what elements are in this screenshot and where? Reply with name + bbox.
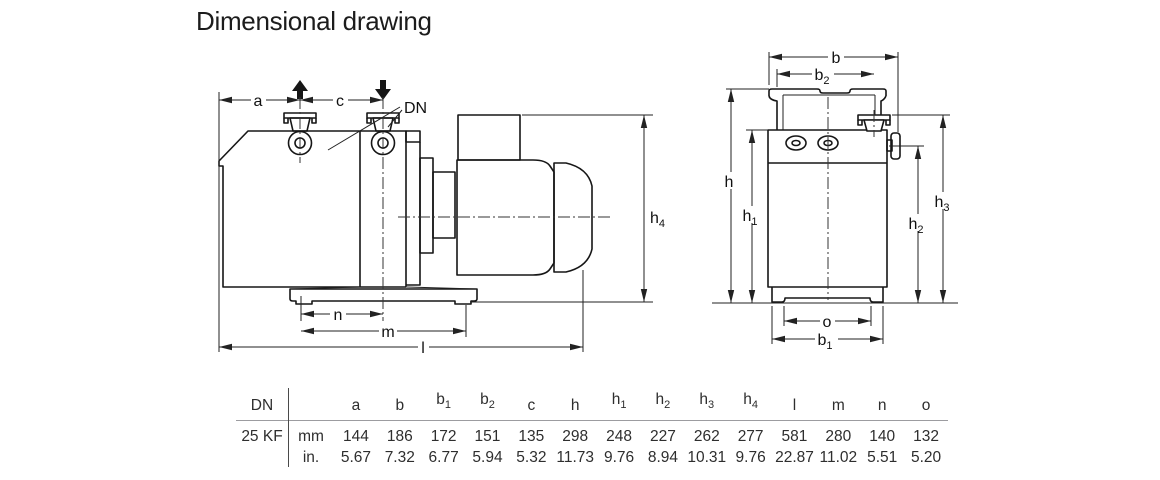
col-header-dn: DN [236, 395, 288, 416]
value-mm-b1: 172 [422, 426, 466, 447]
value-mm-h2: 227 [641, 426, 685, 447]
col-header-n: n [860, 395, 904, 416]
unit-label: in. [288, 447, 334, 468]
col-header-a: a [334, 395, 378, 416]
table-divider [288, 388, 289, 467]
rear-plate [406, 142, 420, 285]
value-in-c: 5.32 [509, 447, 553, 468]
dimensional-drawing: a c DN h4 n m l [0, 0, 1160, 378]
motor-junction-box [458, 115, 520, 160]
col-header-o: o [904, 395, 948, 416]
row-label: 25 KF [236, 426, 288, 447]
value-mm-h4: 277 [729, 426, 773, 447]
value-mm-c: 135 [509, 426, 553, 447]
unit-label: mm [288, 426, 334, 447]
col-header-h1: h1 [597, 389, 641, 416]
value-in-o: 5.20 [904, 447, 948, 468]
value-mm-o: 132 [904, 426, 948, 447]
dim-label-h: h [725, 174, 734, 191]
value-mm-b2: 151 [466, 426, 510, 447]
value-mm-h: 298 [553, 426, 597, 447]
value-in-m: 11.02 [816, 447, 860, 468]
col-header-h: h [553, 395, 597, 416]
dim-label-c: c [336, 93, 344, 110]
dimension-table: DNabb1b2chh1h2h3h4lmno25 KFmm14418617215… [236, 389, 948, 468]
value-in-h: 11.73 [553, 447, 597, 468]
col-header-h2: h2 [641, 389, 685, 416]
dim-label-dn: DN [404, 100, 427, 117]
dim-label-o: o [823, 314, 832, 331]
table-row-mm: 25 KFmm144186172151135298248227262277581… [236, 426, 948, 447]
value-in-h4: 9.76 [729, 447, 773, 468]
value-mm-m: 280 [816, 426, 860, 447]
table-header-row: DNabb1b2chh1h2h3h4lmno [236, 389, 948, 421]
dim-label-h4: h4 [650, 210, 665, 230]
dim-label-a: a [254, 93, 263, 110]
value-in-h1: 9.76 [597, 447, 641, 468]
col-header-h3: h3 [685, 389, 729, 416]
pump-front-view: b b2 h h1 h2 h3 o [712, 49, 958, 352]
value-mm-n: 140 [860, 426, 904, 447]
sight-glass-left [786, 136, 806, 150]
value-mm-h3: 262 [685, 426, 729, 447]
value-mm-b: 186 [378, 426, 422, 447]
pump-side-view: a c DN h4 n m l [219, 80, 665, 357]
col-header-m: m [816, 395, 860, 416]
value-in-n: 5.51 [860, 447, 904, 468]
motor-flange [420, 158, 433, 253]
col-header-b2: b2 [466, 389, 510, 416]
col-header-b: b [378, 395, 422, 416]
value-in-b2: 5.94 [466, 447, 510, 468]
dim-label-l: l [421, 340, 425, 357]
value-mm-l: 581 [773, 426, 817, 447]
datasheet-page: Dimensional drawing [0, 0, 1160, 480]
value-in-a: 5.67 [334, 447, 378, 468]
col-header-b1: b1 [422, 389, 466, 416]
col-header-h4: h4 [729, 389, 773, 416]
value-mm-a: 144 [334, 426, 378, 447]
pump-body-outline [219, 131, 406, 287]
exhaust-flow-arrow-up [292, 80, 308, 99]
value-in-h2: 8.94 [641, 447, 685, 468]
dim-label-b: b [832, 50, 841, 67]
dim-label-m: m [381, 324, 394, 341]
col-header-c: c [509, 395, 553, 416]
motor-spacer [433, 172, 455, 238]
value-in-l: 22.87 [773, 447, 817, 468]
value-in-b1: 6.77 [422, 447, 466, 468]
tower-top-step [406, 131, 420, 142]
value-in-h3: 10.31 [685, 447, 729, 468]
value-mm-h1: 248 [597, 426, 641, 447]
dim-label-n: n [334, 307, 343, 324]
table-row-in: in.5.677.326.775.945.3211.739.768.9410.3… [236, 447, 948, 468]
value-in-b: 7.32 [378, 447, 422, 468]
col-header-l: l [773, 395, 817, 416]
